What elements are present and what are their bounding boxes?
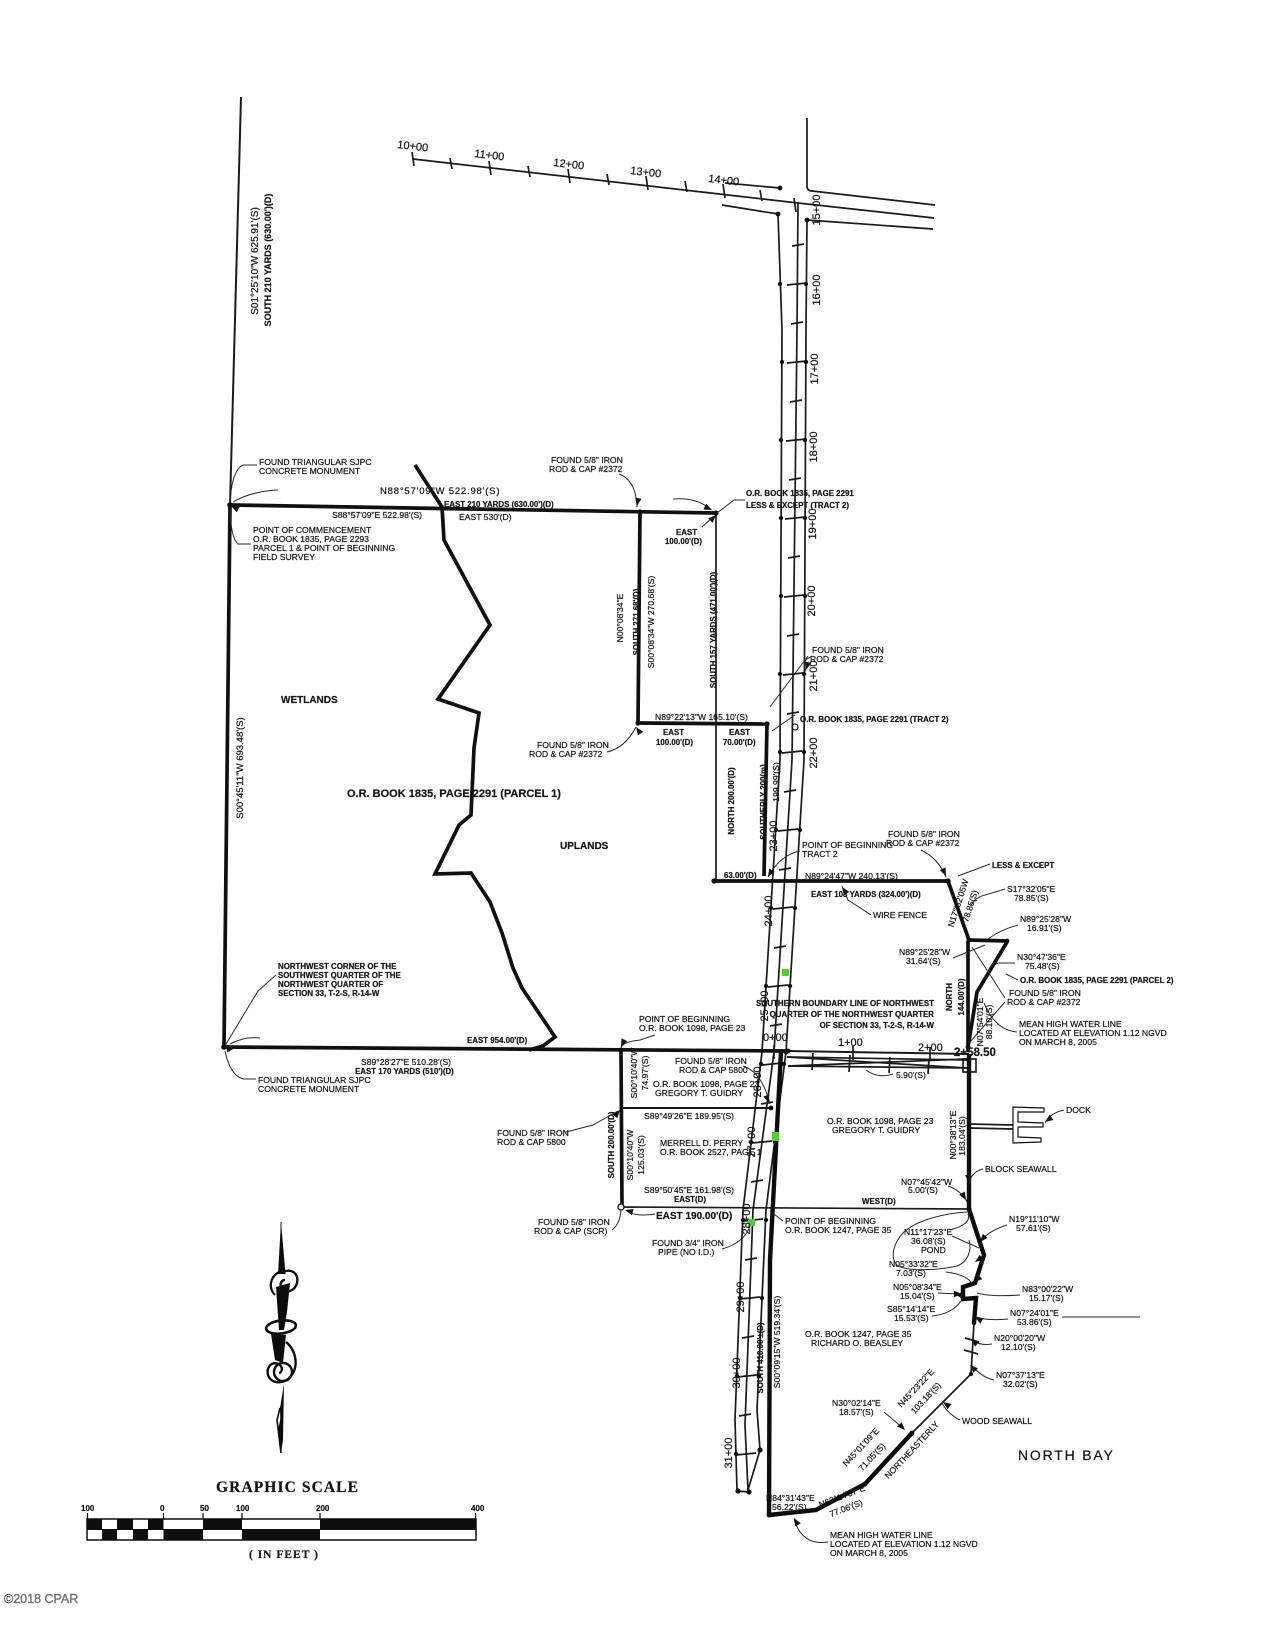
- svg-text:WEST(D): WEST(D): [862, 1197, 896, 1206]
- svg-text:ROD & CAP #2372: ROD & CAP #2372: [810, 654, 884, 664]
- svg-text:SOUTH 271.68'(D): SOUTH 271.68'(D): [632, 588, 641, 655]
- svg-text:12.10'(S): 12.10'(S): [1001, 1342, 1036, 1352]
- svg-text:400: 400: [471, 1504, 485, 1513]
- svg-text:N88°57'09"W 522.98'(S): N88°57'09"W 522.98'(S): [380, 486, 500, 497]
- svg-text:24+00: 24+00: [763, 896, 775, 927]
- svg-text:183.04'(S): 183.04'(S): [957, 1116, 967, 1156]
- svg-text:30+00: 30+00: [731, 1358, 743, 1389]
- svg-text:50: 50: [200, 1504, 209, 1513]
- svg-text:1+00: 1+00: [838, 1037, 863, 1049]
- svg-text:ROD & CAP (SCR): ROD & CAP (SCR): [534, 1226, 608, 1236]
- svg-text:31+00: 31+00: [723, 1438, 735, 1469]
- svg-text:TRACT 2: TRACT 2: [802, 849, 838, 859]
- svg-text:S00°09'15"W 519.34'(S): S00°09'15"W 519.34'(S): [772, 1296, 782, 1389]
- svg-text:SECTION 33, T-2-S, R-14-W: SECTION 33, T-2-S, R-14-W: [278, 989, 380, 998]
- svg-text:NORTH: NORTH: [945, 983, 954, 1011]
- svg-text:DOCK: DOCK: [1066, 1105, 1091, 1115]
- svg-text:RICHARD O. BEASLEY: RICHARD O. BEASLEY: [811, 1338, 903, 1348]
- svg-text:PIPE (NO I.D.): PIPE (NO I.D.): [658, 1247, 714, 1257]
- svg-text:2+00: 2+00: [918, 1042, 943, 1054]
- svg-text:100.00'(D): 100.00'(D): [656, 738, 693, 747]
- svg-text:O.R. BOOK 2527, PAGE 1: O.R. BOOK 2527, PAGE 1: [660, 1147, 762, 1157]
- svg-text:O.R. BOOK 1835, PAGE 2291 (PAR: O.R. BOOK 1835, PAGE 2291 (PARCEL 2): [1020, 976, 1174, 985]
- svg-text:O.R. BOOK 1835, PAGE 2291: O.R. BOOK 1835, PAGE 2291: [746, 489, 854, 498]
- svg-text:WETLANDS: WETLANDS: [281, 695, 338, 706]
- svg-text:19+00: 19+00: [807, 509, 819, 540]
- svg-text:SOUTH 410.00'±(D): SOUTH 410.00'±(D): [756, 1322, 765, 1393]
- svg-text:NORTH BAY: NORTH BAY: [1018, 1447, 1115, 1463]
- svg-text:16.91'(S): 16.91'(S): [1027, 923, 1062, 933]
- svg-text:OF SECTION 33, T-2-S, R-14-W: OF SECTION 33, T-2-S, R-14-W: [820, 1021, 935, 1030]
- svg-text:EAST: EAST: [676, 528, 697, 537]
- svg-text:63.00'(D): 63.00'(D): [724, 871, 757, 880]
- svg-text:100: 100: [236, 1504, 250, 1513]
- svg-text:17+00: 17+00: [809, 354, 821, 385]
- svg-text:ROD & CAP 5800: ROD & CAP 5800: [497, 1137, 566, 1147]
- svg-text:ROD & CAP #2372: ROD & CAP #2372: [549, 464, 623, 474]
- svg-text:S89°28'27"E 510.28'(S): S89°28'27"E 510.28'(S): [361, 1057, 451, 1067]
- svg-text:125.03'(S): 125.03'(S): [636, 1135, 646, 1175]
- svg-text:144.00'(D): 144.00'(D): [957, 978, 966, 1015]
- svg-text:15.17'(S): 15.17'(S): [1029, 1293, 1064, 1303]
- svg-text:GREGORY T. GUIDRY: GREGORY T. GUIDRY: [655, 1088, 743, 1098]
- svg-text:BLOCK SEAWALL: BLOCK SEAWALL: [985, 1164, 1057, 1174]
- svg-text:11+00: 11+00: [474, 148, 505, 163]
- svg-text:EAST: EAST: [729, 728, 750, 737]
- svg-text:SOUTHERLY 200(m): SOUTHERLY 200(m): [759, 764, 768, 840]
- svg-text:UPLANDS: UPLANDS: [560, 841, 609, 852]
- svg-text:SOUTH 200.00'(D): SOUTH 200.00'(D): [607, 1111, 616, 1178]
- svg-text:ON MARCH 8, 2005: ON MARCH 8, 2005: [830, 1548, 908, 1558]
- svg-text:EAST(D): EAST(D): [674, 1195, 706, 1204]
- svg-text:SOUTHWEST QUARTER OF THE: SOUTHWEST QUARTER OF THE: [278, 971, 401, 980]
- svg-text:N89°24'47"W 240.13'(S): N89°24'47"W 240.13'(S): [805, 871, 898, 881]
- svg-text:WIRE FENCE: WIRE FENCE: [873, 910, 927, 920]
- svg-text:22+00: 22+00: [808, 738, 820, 769]
- svg-text:EAST 210 YARDS (630.00')(D): EAST 210 YARDS (630.00')(D): [444, 500, 554, 509]
- svg-text:100: 100: [81, 1504, 95, 1513]
- svg-text:POND: POND: [921, 1245, 946, 1255]
- svg-text:S01°25'10"W 625.91'(S): S01°25'10"W 625.91'(S): [250, 207, 261, 315]
- svg-text:S00°10'40"W: S00°10'40"W: [629, 1047, 639, 1099]
- svg-text:QUARTER OF THE NORTHWEST QUART: QUARTER OF THE NORTHWEST QUARTER: [770, 1010, 935, 1019]
- svg-text:5.00'(S): 5.00'(S): [908, 1185, 938, 1195]
- svg-text:CONCRETE MONUMENT: CONCRETE MONUMENT: [258, 1084, 360, 1094]
- svg-text:29+00: 29+00: [735, 1282, 747, 1313]
- svg-text:7.03'(S): 7.03'(S): [896, 1268, 926, 1278]
- svg-text:S00°45'11"W 693.48'(S): S00°45'11"W 693.48'(S): [235, 717, 246, 818]
- svg-text:28+00: 28+00: [741, 1204, 753, 1235]
- svg-text:56.22'(S): 56.22'(S): [772, 1502, 807, 1512]
- svg-text:70.00'(D): 70.00'(D): [723, 738, 756, 747]
- svg-text:57.61'(S): 57.61'(S): [1016, 1223, 1051, 1233]
- svg-text:CONCRETE MONUMENT: CONCRETE MONUMENT: [259, 466, 361, 476]
- svg-text:0+00: 0+00: [763, 1032, 788, 1044]
- svg-text:S88°57'09"E 522.98'(S): S88°57'09"E 522.98'(S): [332, 510, 422, 520]
- svg-text:EAST 954.00'(D): EAST 954.00'(D): [467, 1036, 528, 1045]
- svg-text:N00°08'34"E: N00°08'34"E: [615, 593, 625, 642]
- svg-text:ON MARCH 8, 2005: ON MARCH 8, 2005: [1019, 1037, 1097, 1047]
- svg-text:N89°22'13"W 165.10'(S): N89°22'13"W 165.10'(S): [655, 712, 748, 722]
- svg-text:WOOD SEAWALL: WOOD SEAWALL: [962, 1416, 1032, 1426]
- svg-text:ROD & CAP #2372: ROD & CAP #2372: [529, 749, 603, 759]
- svg-text:O.R. BOOK 1247, PAGE 35: O.R. BOOK 1247, PAGE 35: [785, 1225, 892, 1235]
- svg-text:S00°08'34"W 270.68'(S): S00°08'34"W 270.68'(S): [646, 576, 656, 669]
- svg-text:NORTHWEST CORNER OF THE: NORTHWEST CORNER OF THE: [278, 962, 396, 971]
- svg-text:S00°10'40"W: S00°10'40"W: [625, 1129, 635, 1181]
- svg-text:S89°50'45"E 161.98'(S): S89°50'45"E 161.98'(S): [644, 1185, 734, 1195]
- svg-text:O.R. BOOK 1835, PAGE 2291 (PAR: O.R. BOOK 1835, PAGE 2291 (PARCEL 1): [347, 788, 561, 800]
- svg-text:0: 0: [160, 1504, 165, 1513]
- svg-text:15.53'(S): 15.53'(S): [894, 1313, 929, 1323]
- svg-text:SOUTHERN BOUNDARY LINE OF NORT: SOUTHERN BOUNDARY LINE OF NORTHWEST: [756, 999, 934, 1008]
- svg-text:ROD & CAP 5800: ROD & CAP 5800: [679, 1065, 748, 1075]
- svg-text:( IN FEET ): ( IN FEET ): [249, 1549, 319, 1561]
- svg-text:15.04'(S): 15.04'(S): [900, 1291, 935, 1301]
- svg-text:©2018 CPAR: ©2018 CPAR: [4, 1592, 78, 1606]
- svg-text:16+00: 16+00: [811, 275, 823, 306]
- svg-text:18+00: 18+00: [808, 432, 820, 463]
- svg-text:88.10'(S): 88.10'(S): [984, 1005, 994, 1040]
- svg-text:O.R. BOOK 1835, PAGE 2291 (TRA: O.R. BOOK 1835, PAGE 2291 (TRACT 2): [800, 715, 949, 724]
- svg-text:10+00: 10+00: [397, 139, 429, 154]
- svg-text:75.48'(S): 75.48'(S): [1025, 961, 1060, 971]
- svg-text:200: 200: [316, 1504, 330, 1513]
- svg-text:31.64'(S): 31.64'(S): [906, 956, 941, 966]
- svg-text:74.97'(S): 74.97'(S): [640, 1056, 650, 1091]
- svg-text:GRAPHIC SCALE: GRAPHIC SCALE: [216, 1479, 359, 1496]
- svg-text:18.57'(S): 18.57'(S): [839, 1407, 874, 1417]
- svg-text:ROD & CAP #2372: ROD & CAP #2372: [1007, 997, 1081, 1007]
- svg-text:5.90'(S): 5.90'(S): [896, 1070, 926, 1080]
- svg-text:EAST 108 YARDS (324.00')(D): EAST 108 YARDS (324.00')(D): [811, 890, 921, 899]
- svg-text:EAST 190.00'(D): EAST 190.00'(D): [656, 1211, 732, 1222]
- svg-text:ROD & CAP #2372: ROD & CAP #2372: [886, 838, 960, 848]
- svg-text:LESS & EXCEPT (TRACT 2): LESS & EXCEPT (TRACT 2): [746, 501, 849, 510]
- svg-text:NORTHEASTERLY: NORTHEASTERLY: [883, 1419, 941, 1481]
- svg-text:SOUTH 210 YARDS (630.00')(D): SOUTH 210 YARDS (630.00')(D): [263, 194, 273, 327]
- svg-text:SOUTH 157 YARDS (471.00')(D): SOUTH 157 YARDS (471.00')(D): [709, 571, 718, 688]
- svg-text:15+00: 15+00: [811, 195, 823, 226]
- svg-text:FIELD SURVEY: FIELD SURVEY: [253, 552, 315, 562]
- svg-text:S89°49'26"E 189.95'(S): S89°49'26"E 189.95'(S): [644, 1111, 734, 1121]
- svg-text:78.85'(S): 78.85'(S): [1014, 893, 1049, 903]
- svg-text:100.00'(D): 100.00'(D): [665, 537, 702, 546]
- svg-text:12+00: 12+00: [553, 157, 585, 172]
- svg-text:32.02'(S): 32.02'(S): [1003, 1379, 1038, 1389]
- svg-text:EAST 530'(D): EAST 530'(D): [459, 512, 512, 522]
- svg-text:13+00: 13+00: [630, 165, 662, 180]
- svg-text:EAST: EAST: [663, 728, 684, 737]
- svg-text:GREGORY T. GUIDRY: GREGORY T. GUIDRY: [832, 1125, 920, 1135]
- svg-text:O.R. BOOK 1098, PAGE 23: O.R. BOOK 1098, PAGE 23: [639, 1023, 746, 1033]
- svg-text:2+58.50: 2+58.50: [954, 1047, 996, 1059]
- svg-text:14+00: 14+00: [708, 173, 740, 188]
- svg-text:21+00: 21+00: [808, 661, 820, 692]
- svg-text:NORTH 200.00'(D): NORTH 200.00'(D): [727, 767, 736, 835]
- svg-text:20+00: 20+00: [806, 586, 818, 617]
- svg-text:53.86'(S): 53.86'(S): [1017, 1317, 1052, 1327]
- svg-text:23+00: 23+00: [768, 821, 780, 852]
- svg-text:199.99'(S): 199.99'(S): [771, 762, 781, 802]
- svg-text:NORTHWEST QUARTER OF: NORTHWEST QUARTER OF: [278, 980, 383, 989]
- svg-text:LESS & EXCEPT: LESS & EXCEPT: [992, 861, 1054, 870]
